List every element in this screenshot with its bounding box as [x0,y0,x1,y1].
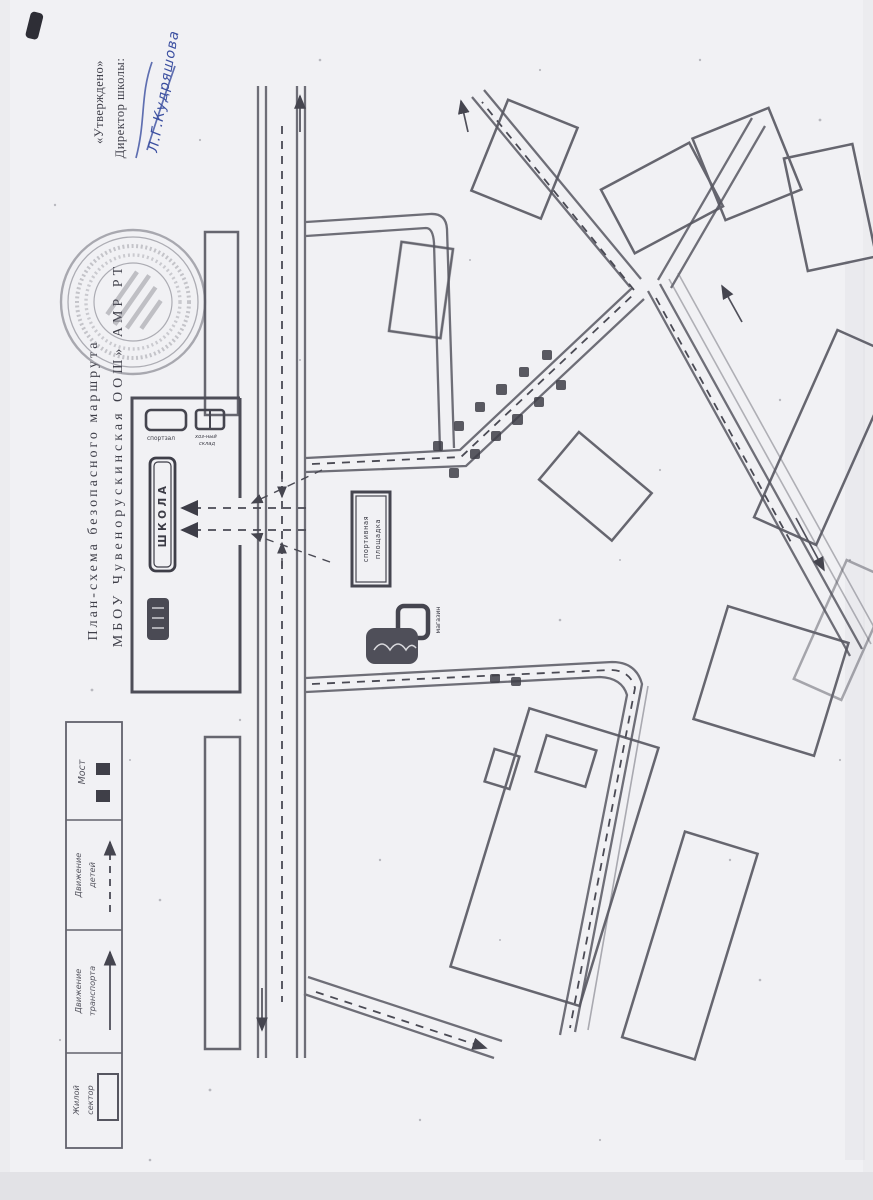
sports-ground-label1: спортивная [362,516,370,563]
legend-bridge-label: Мост [77,759,88,784]
scan-artifact-band [845,260,865,1160]
legend-transport-label1: Движение [73,969,83,1015]
plan-scheme-map: «Утверждено» Директор школы: Л.Г.Кудряшо… [0,0,873,1200]
bridge-symbol [96,763,110,775]
legend-children-label2: детей [87,861,97,889]
approval-line1: «Утверждено» [92,60,106,144]
scanned-plan-page: «Утверждено» Директор школы: Л.Г.Кудряшо… [0,0,873,1200]
approval-line2: Директор школы: [113,58,127,159]
bridge-symbol [96,790,110,802]
legend-housing-label1: Жилой [71,1084,81,1115]
legend-children-label1: Движение [73,853,83,899]
vehicle-blob [366,628,418,664]
title-line1: План-схема безопасного маршрута [86,340,101,641]
outbuilding [147,598,169,640]
shed-label-line2: склад [199,441,215,447]
legend-transport-label2: транспорта [87,966,97,1016]
school-label: ШКОЛА [157,483,169,548]
store-label: магазин [435,607,442,634]
gym-label: спортзал [147,436,175,442]
legend-housing-label2: сектор [85,1085,95,1114]
sports-ground-label2: площадка [374,519,382,559]
shed-label-line1: хоз-ный [194,434,217,440]
scan-bottom-edge [0,1172,873,1200]
